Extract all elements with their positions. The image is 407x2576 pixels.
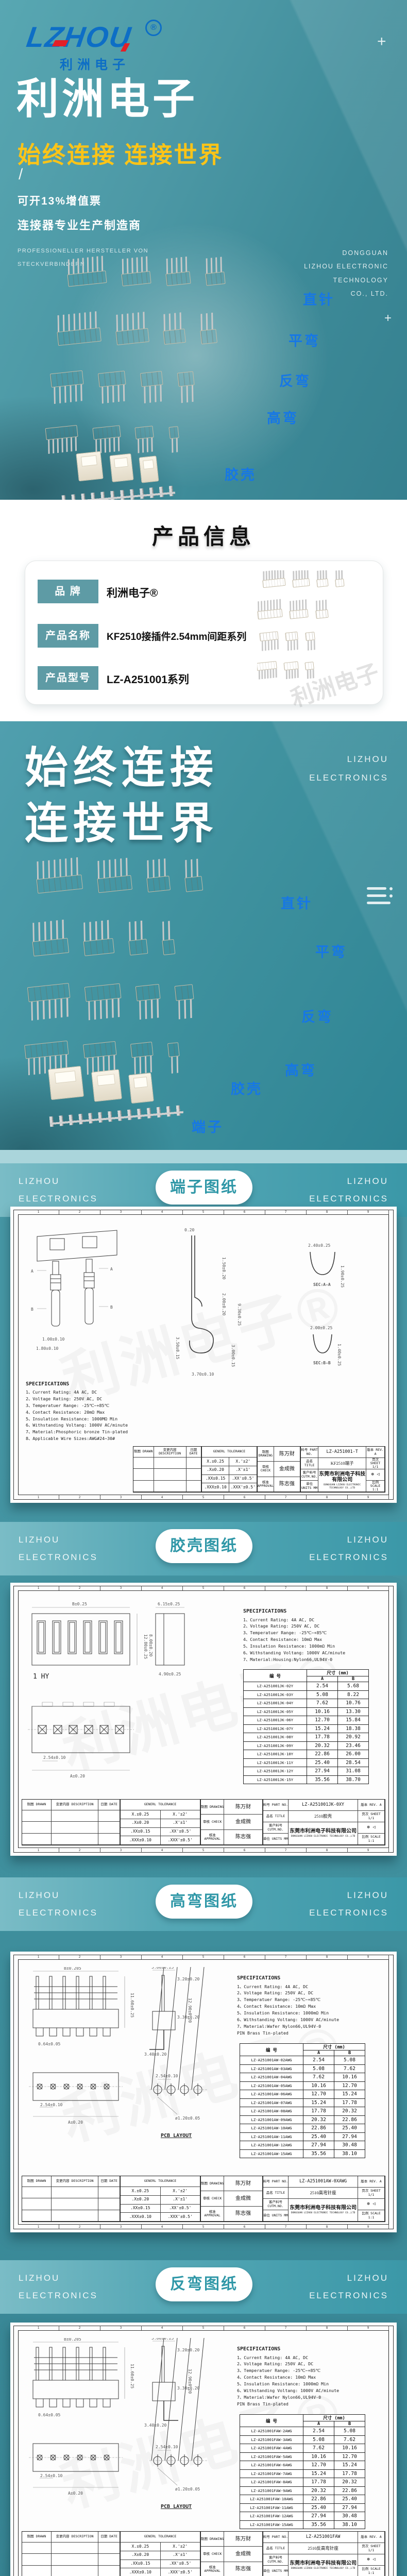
dim-b-cell: 30.48 <box>334 2141 365 2150</box>
part-number-cell: LZ-A251001AW-08AWG <box>240 2107 303 2116</box>
dim-b-cell: 12.70 <box>334 2452 365 2461</box>
connector-photo <box>127 920 148 955</box>
svg-text:4.90±0.25: 4.90±0.25 <box>159 1672 181 1676</box>
svg-text:PCB LAYOUT: PCB LAYOUT <box>161 2504 192 2510</box>
titleblock-r0l: 制图 DRAWING <box>201 1800 224 1815</box>
titleblock-part_no: LZ-A251001AW-0XAWG <box>289 2176 358 2188</box>
spec-line: 6、Withstanding Voltang: 1000V AC/minute <box>26 1422 128 1429</box>
connector-type-label: 反弯 <box>301 1006 333 1026</box>
titleblock-t20: .XX±0.15 <box>121 2205 160 2213</box>
connector-photo <box>84 984 124 1021</box>
titleblock-cust_label: 客户料号 CUTM.NO. <box>263 2554 289 2566</box>
titleblock-t30: .XXX±0.10 <box>121 2213 160 2222</box>
ruler-number: 5 <box>183 1586 224 1590</box>
header-brand-left: LIZHOUELECTRONICS <box>19 2269 98 2304</box>
dim-a-cell: 2.54 <box>307 1682 338 1691</box>
titleblock-t01: X.'±2' <box>161 1810 200 1819</box>
table-header-size: 尺寸 (mm) <box>303 2415 365 2421</box>
connector-type-label: 平弯 <box>289 330 320 350</box>
connector-photo <box>35 857 83 894</box>
ruler-number: 9 <box>348 1955 389 1959</box>
titleblock-cust_label: 客户料号 CUTM.NO. <box>263 1822 289 1834</box>
part-number-cell: LZ-A251001AW-05AWG <box>240 2081 303 2090</box>
hero-subtitle: 始终连接 连接世界 <box>18 136 224 170</box>
connector-photo <box>98 370 128 403</box>
svg-text:0.64±0.05: 0.64±0.05 <box>38 2042 61 2046</box>
connector-shell-photo <box>91 1069 122 1101</box>
titleblock-unitscell: 单位 UNITS MM <box>263 2566 289 2576</box>
part-number-cell: LZ-A251001JK-12Y <box>244 1767 307 1776</box>
header-brand-right: LIZHOUELECTRONICS <box>309 1173 388 1208</box>
dim-b-cell: 22.86 <box>334 2115 365 2124</box>
ruler-number: 9 <box>348 1586 389 1590</box>
titleblock-tol_title: GENERL TOLERANCE <box>121 1800 200 1810</box>
titleblock-drawn: 制图 DRAWN <box>133 1447 154 1458</box>
svg-text:B: B <box>110 1305 113 1310</box>
table-row: LZ-A251001FAW-7AWG 15.24 17.78 <box>240 2469 365 2478</box>
titleblock-title_cn: 2510胶壳 <box>289 1811 358 1822</box>
titleblock-t21: .XX'±0.5' <box>229 1475 257 1484</box>
header-brand-right: LIZHOUELECTRONICS <box>309 1531 388 1566</box>
table-row: LZ-A251001AW-05AWG 10.16 12.70 <box>240 2081 365 2090</box>
banner-en-line: ELECTRONICS <box>309 769 388 787</box>
dim-a-cell: 2.54 <box>303 2427 334 2436</box>
connector-photo <box>177 371 196 403</box>
specifications-block: SPECIFICATIONS1、Current Rating: 4A AC, D… <box>26 1380 128 1442</box>
ruler-number: 5 <box>183 1210 224 1214</box>
connector-type-label: 胶壳 <box>225 464 257 484</box>
ruler-number: 7 <box>265 2326 307 2330</box>
ruler-number: 8 <box>307 1586 348 1590</box>
titleblock-title_label: 品名 TITLE <box>263 1811 289 1822</box>
table-header-a: A <box>303 2421 334 2427</box>
connector-photo <box>65 256 107 287</box>
drawings-wrapper: LIZHOUELECTRONICS 端子图纸 LIZHOUELECTRONICS… <box>0 1150 407 2576</box>
svg-text:B: B <box>31 1307 33 1312</box>
wafer-drawing: B±0.205 11.60±0.25 0.64±0.05 5.80±0.25 3… <box>23 2338 234 2536</box>
banner-brand-en: LIZHOU ELECTRONICS <box>309 750 388 787</box>
titleblock-proj: ⊕ ◁ <box>358 2554 385 2566</box>
ruler-number: 6 <box>224 1210 265 1214</box>
dimension-table: 编 号 尺寸 (mm) A B LZ-A251001AW-02AWG 2.54 … <box>240 2043 365 2158</box>
connector-photo <box>140 371 165 403</box>
connector-photo <box>291 570 310 588</box>
table-header-a: A <box>303 2050 334 2056</box>
part-number-cell: LZ-A251001JK-09Y <box>244 1741 307 1750</box>
svg-text:5.80±0.25: 5.80±0.25 <box>151 2338 174 2341</box>
titleblock-part_label: 料号 PART NO. <box>263 1800 289 1811</box>
dim-b-cell: 27.94 <box>334 2132 365 2141</box>
ruler-number: 7 <box>265 1848 307 1853</box>
titleblock-t21: .XX'±0.5' <box>161 2560 200 2569</box>
ruler-number: 9 <box>348 1210 389 1214</box>
connector-photo <box>145 858 171 892</box>
titleblock-r0l: 制图 DRAWING <box>258 1447 274 1462</box>
ruler-number: 5 <box>183 1848 224 1853</box>
part-number-cell: LZ-A251001JK-15Y <box>244 1775 307 1784</box>
ruler-number: 7 <box>265 1955 307 1959</box>
svg-text:2.00±0.25: 2.00±0.25 <box>310 1326 333 1330</box>
titleblock-scalecell: 比例 SCALE 1:1 <box>358 1834 385 1845</box>
table-row: LZ-A251001JK-07Y 15.24 18.38 <box>244 1724 369 1733</box>
titleblock-t01: X.'±2' <box>161 2187 200 2196</box>
titleblock-t30: .XXX±0.10 <box>202 1483 230 1492</box>
connector-type-label: 高弯 <box>267 407 299 427</box>
table-header-size: 尺寸 (mm) <box>303 2044 365 2050</box>
svg-text:A±0.20: A±0.20 <box>70 1774 85 1778</box>
titleblock-proj: ⊕ ◁ <box>366 1469 385 1481</box>
table-row: LZ-A251001JK-02Y 2.54 5.68 <box>244 1682 369 1691</box>
table-row: LZ-A251001AW-08AWG 17.78 20.32 <box>240 2107 365 2116</box>
titleblock-r1v: 金成微 <box>224 2547 262 2562</box>
ruler-number: 4 <box>142 2326 183 2330</box>
spec-line: 5、Insulation Resistance: 1000mΩ Min <box>243 1643 345 1650</box>
drawing-title-text: 高弯图纸 <box>170 1893 238 1910</box>
dim-a-cell: 12.70 <box>307 1716 338 1725</box>
table-header-a: A <box>307 1676 338 1682</box>
dim-b-cell: 17.78 <box>334 2469 365 2478</box>
part-number-cell: LZ-A251001JK-04Y <box>244 1699 307 1708</box>
titleblock-scalecell: 比例 SCALE 1:1 <box>366 1481 385 1492</box>
spec-line: 1、Current Rating: 4A AC, DC <box>26 1389 128 1396</box>
part-number-cell: LZ-A251001FAW-2AWG <box>240 2427 303 2436</box>
table-header-b: B <box>338 1676 369 1682</box>
svg-text:11.60±0.25: 11.60±0.25 <box>130 1993 134 2018</box>
connector-photo <box>289 599 309 619</box>
dim-a-cell: 27.94 <box>303 2512 334 2521</box>
dim-a-cell: 15.24 <box>303 2469 334 2478</box>
connector-photo <box>314 600 329 619</box>
dim-a-cell: 35.56 <box>303 2520 334 2529</box>
titleblock-unitscell: 单位 UNITS MM <box>263 1834 289 1845</box>
svg-text:A: A <box>110 1267 113 1272</box>
part-number-cell: LZ-A251001JK-07Y <box>244 1724 307 1733</box>
connector-type-label: 直针 <box>281 892 313 912</box>
titleblock-t00: X.±0.25 <box>202 1458 230 1466</box>
spec-line: 3、Temperatuer Range: -25℃~+85℃ <box>243 1630 345 1636</box>
ruler-number: 4 <box>142 1848 183 1853</box>
part-number-cell: LZ-A251001AW-09AWG <box>240 2115 303 2124</box>
titleblock-drawn: 制图 DRAWN <box>22 2176 52 2187</box>
product-model-label: 产品型号 <box>38 666 98 690</box>
dim-a-cell: 10.16 <box>307 1707 338 1716</box>
connector-shell-photo <box>128 1073 154 1104</box>
titleblock-t10: .X±0.20 <box>121 2551 160 2560</box>
connector-photo <box>160 921 175 955</box>
dim-b-cell: 12.70 <box>334 2081 365 2090</box>
dim-a-cell: 22.86 <box>303 2495 334 2504</box>
svg-text:3.40±0.20: 3.40±0.20 <box>144 2423 167 2428</box>
svg-text:11.60±0.25: 11.60±0.25 <box>130 2364 134 2388</box>
table-row: LZ-A251001JK-05Y 10.16 13.30 <box>244 1707 369 1716</box>
plus-decoration-icon: + <box>384 312 392 325</box>
dim-a-cell: 7.62 <box>303 2444 334 2453</box>
ruler-number: 4 <box>142 1495 183 1500</box>
table-row: LZ-A251001FAW-15AWG 35.56 38.10 <box>240 2520 365 2529</box>
ruler-number: 3 <box>100 1586 142 1590</box>
ruler-number: 5 <box>183 2326 224 2330</box>
titleblock-title_cn: 2510反高弯针座 <box>289 2543 358 2554</box>
titleblock-t10: .X±0.20 <box>121 1819 160 1828</box>
logo-chinese-name: 利洲电子 <box>60 55 130 73</box>
dim-a-cell: 25.40 <box>307 1758 338 1767</box>
dim-b-cell: 25.40 <box>334 2124 365 2133</box>
titleblock-r1l: 审核 CHECK <box>201 2191 224 2206</box>
ruler-number: 4 <box>142 1210 183 1214</box>
titleblock-title_cn: KF2510端子 <box>318 1458 366 1469</box>
ruler-number: 2 <box>59 1955 100 1959</box>
titleblock-t11: .X'±1' <box>161 1819 200 1828</box>
dim-b-cell: 13.30 <box>338 1707 369 1716</box>
svg-text:5.80±0.25: 5.80±0.25 <box>151 1967 174 1970</box>
spec-line: 6、Withstanding Voltang: 1000V AC/minute <box>237 2016 339 2023</box>
connector-type-label: 反弯 <box>279 370 311 390</box>
table-row: LZ-A251001FAW-5AWG 10.16 12.70 <box>240 2452 365 2461</box>
ruler-number: 1 <box>18 1586 59 1590</box>
dim-b-cell: 18.38 <box>338 1724 369 1733</box>
ruler-number: 1 <box>18 1495 59 1500</box>
ruler-number: 4 <box>142 1586 183 1590</box>
svg-text:2.54±0.10: 2.54±0.10 <box>43 1755 66 1760</box>
table-row: LZ-A251001FAW-4AWG 7.62 10.16 <box>240 2444 365 2453</box>
table-row: LZ-A251001AW-10AWG 22.86 25.40 <box>240 2124 365 2133</box>
specs-title: SPECIFICATIONS <box>237 2345 339 2353</box>
ruler-number: 9 <box>348 2326 389 2330</box>
dim-a-cell: 25.40 <box>303 2503 334 2512</box>
hero-section: LZHOU 利洲电子 ® + 利洲电子 始终连接 连接世界 / 可开13%增值票… <box>0 0 407 500</box>
drawing-title-pill: 胶壳图纸 <box>156 1529 252 1563</box>
connector-photo <box>198 313 217 345</box>
titleblock-t30: .XXX±0.10 <box>121 1836 160 1845</box>
dim-b-cell: 10.16 <box>334 2444 365 2453</box>
table-row: LZ-A251001JK-08Y 17.78 20.92 <box>244 1733 369 1742</box>
part-number-cell: LZ-A251001JK-08Y <box>244 1733 307 1742</box>
connector-photo <box>50 370 86 404</box>
spec-line: 6、Withstanding Voltang: 1000V AC/minute <box>243 1650 345 1656</box>
part-number-cell: LZ-A251001AW-07AWG <box>240 2098 303 2107</box>
titleblock-title_label: 品名 TITLE <box>263 2543 289 2554</box>
ruler-number: 6 <box>224 2225 265 2229</box>
titleblock-company_en: DONGGUAN LIZHOU ELECTRONIC TECHNOLOGY CO… <box>318 1484 366 1489</box>
titleblock-revcell: 版本 REV. A <box>358 1800 385 1811</box>
part-number-cell: LZ-A251001FAW-3AWG <box>240 2435 303 2444</box>
titleblock-title_label: 品名 TITLE <box>301 1458 318 1469</box>
german-tagline-line1: PROFESSIONELLER HERSTELLER VON <box>18 244 148 258</box>
titleblock-t31: .XXX'±0.5' <box>161 2213 200 2222</box>
dim-a-cell: 15.24 <box>303 2098 334 2107</box>
titleblock-unitscell: 单位 UNITS MM <box>301 1481 318 1492</box>
connector-type-label: 高弯 <box>285 1059 317 1079</box>
plus-decoration-icon: + <box>377 34 386 49</box>
svg-text:0.64±0.05: 0.64±0.05 <box>38 2413 61 2417</box>
titleblock-revcell: 版本 REV. A <box>358 2176 385 2188</box>
drawing-title-text: 胶壳图纸 <box>170 1537 238 1554</box>
drawing-section-header: LIZHOUELECTRONICS 反弯图纸 LIZHOUELECTRONICS <box>0 2260 407 2314</box>
ruler-number: 8 <box>307 1955 348 1959</box>
titleblock-r2v: 陈志强 <box>274 1477 300 1492</box>
titleblock-t11: .X'±1' <box>229 1466 257 1475</box>
drawing-ruler: 123456789 <box>18 1495 389 1500</box>
table-row: LZ-A251001FAW-8AWG 17.78 20.32 <box>240 2478 365 2487</box>
drawing-section-header: LIZHOUELECTRONICS 高弯图纸 LIZHOUELECTRONICS <box>0 1877 407 1931</box>
part-number-cell: LZ-A251001FAW-15AWG <box>240 2520 303 2529</box>
titleblock-t20: .XX±0.15 <box>121 1828 160 1837</box>
dim-b-cell: 38.10 <box>334 2520 365 2529</box>
svg-text:B±0.205: B±0.205 <box>64 1967 81 1971</box>
titleblock-t11: .X'±1' <box>161 2551 200 2560</box>
ruler-number: 3 <box>100 1848 142 1853</box>
ruler-number: 2 <box>59 1848 100 1853</box>
product-name-label: 产品名称 <box>38 624 98 648</box>
dim-a-cell: 22.86 <box>307 1750 338 1759</box>
dim-b-cell: 5.08 <box>334 2427 365 2436</box>
ruler-number: 4 <box>142 2225 183 2229</box>
ruler-number: 7 <box>265 1210 307 1214</box>
ruler-number: 2 <box>59 2326 100 2330</box>
titleblock-t20: .XX±0.15 <box>202 1475 230 1484</box>
spec-line: 1、Current Rating: 4A AC, DC <box>237 1984 339 1990</box>
connector-photo <box>285 632 300 651</box>
brand-label: 品 牌 <box>38 580 98 603</box>
product-info-title: 产品信息 <box>0 519 407 551</box>
ruler-number: 3 <box>100 2326 142 2330</box>
table-row: LZ-A251001AW-12AWG 27.94 30.48 <box>240 2141 365 2150</box>
titleblock-r2v: 陈志强 <box>224 2207 262 2222</box>
svg-text:3.50±0.15: 3.50±0.15 <box>175 1337 180 1360</box>
svg-text:3.40±0.20: 3.40±0.20 <box>144 2052 167 2057</box>
spec-line: 7、Material:Wafer Nylon66,UL94V-0 <box>237 2023 339 2030</box>
svg-text:3.20±0.20: 3.20±0.20 <box>177 1977 200 1981</box>
drawing-ruler: 123456789 <box>18 1848 389 1853</box>
ruler-number: 2 <box>59 1586 100 1590</box>
titleblock-desc: 变更内容 DESCRIPTION <box>154 1447 186 1458</box>
ruler-number: 6 <box>224 1495 265 1500</box>
connector-photo <box>305 632 316 651</box>
titleblock-t11: .X'±1' <box>161 2196 200 2205</box>
titleblock-r0l: 制图 DRAWING <box>201 2532 224 2547</box>
titleblock-t10: .X±0.20 <box>121 2196 160 2205</box>
banner-section: 始终连接 连接世界 LIZHOU ELECTRONICS 直针平弯反弯高弯胶壳端… <box>0 721 407 1150</box>
dim-a-cell: 22.86 <box>303 2124 334 2133</box>
header-brand-left: LIZHOUELECTRONICS <box>19 1173 98 1208</box>
svg-text:3.70±0.10: 3.70±0.10 <box>192 1372 214 1377</box>
dim-b-cell: 10.16 <box>334 2073 365 2082</box>
ruler-number: 1 <box>18 1848 59 1853</box>
titleblock-company_cn: 东莞市利洲电子科技有限公司 <box>318 1471 366 1483</box>
table-row: LZ-A251001AW-02AWG 2.54 5.08 <box>240 2056 365 2065</box>
drawing-title-pill: 端子图纸 <box>156 1171 252 1205</box>
specifications-block: SPECIFICATIONS1、Current Rating: 4A AC, D… <box>243 1607 345 1663</box>
dim-a-cell: 5.08 <box>303 2435 334 2444</box>
titleblock-t21: .XX'±0.5' <box>161 2205 200 2213</box>
connector-photo <box>315 570 328 587</box>
titleblock-t31: .XXX'±0.5' <box>229 1483 257 1492</box>
titleblock-part_no: LZ-A251001-T <box>318 1447 366 1458</box>
connector-photo <box>45 425 79 454</box>
dim-b-cell: 7.62 <box>334 2435 365 2444</box>
dim-a-cell: 35.56 <box>303 2149 334 2158</box>
titleblock-company_en: DONGGUAN LIZHOU ELECTRONIC TECHNOLOGY CO… <box>291 2212 355 2214</box>
dim-a-cell: 20.32 <box>303 2115 334 2124</box>
connector-photo <box>167 1042 181 1074</box>
connector-shell-photo <box>109 453 133 482</box>
dim-b-cell: 38.10 <box>334 2149 365 2158</box>
banner-title-line2: 连接世界 <box>25 802 218 845</box>
dim-a-cell: 35.56 <box>307 1775 338 1784</box>
table-row: LZ-A251001FAW-2AWG 2.54 5.08 <box>240 2427 365 2436</box>
titleblock-t00: X.±0.25 <box>121 1810 160 1819</box>
titleblock-sheetcell: 页次 SHEET 1/1 <box>358 2543 385 2554</box>
dim-a-cell: 10.16 <box>303 2081 334 2090</box>
drawing-title-block: 制图 DRAWN变更内容 DESCRIPTION日期 DATE GENERL T… <box>22 2176 385 2222</box>
svg-text:2.54±0.10: 2.54±0.10 <box>40 2103 63 2107</box>
table-header-part: 编 号 <box>240 2415 303 2427</box>
svg-text:2.40±0.25: 2.40±0.25 <box>308 1243 331 1248</box>
titleblock-scalecell: 比例 SCALE 1:1 <box>358 2566 385 2576</box>
spec-line: 4、Contact Resistance: 20mΩ Max <box>26 1409 128 1416</box>
titleblock-t31: .XXX'±0.5' <box>161 1836 200 1845</box>
drawing-title-block: 制图 DRAWN变更内容 DESCRIPTION日期 DATE GENERL T… <box>22 1799 385 1845</box>
header-brand-left: LIZHOUELECTRONICS <box>19 1887 98 1922</box>
table-row: LZ-A251001JK-03Y 5.08 8.22 <box>244 1690 369 1699</box>
titleblock-t00: X.±0.25 <box>121 2543 160 2551</box>
table-row: LZ-A251001JK-09Y 20.32 23.46 <box>244 1741 369 1750</box>
dim-a-cell: 27.94 <box>303 2141 334 2150</box>
dim-b-cell: 15.24 <box>334 2461 365 2470</box>
table-row: LZ-A251001AW-07AWG 15.24 17.78 <box>240 2098 365 2107</box>
table-row: LZ-A251001JK-10Y 22.86 26.00 <box>244 1750 369 1759</box>
ruler-number: 9 <box>348 2225 389 2229</box>
spec-line: 3、Temperatuer Range: -25℃~+85℃ <box>237 2367 339 2374</box>
titleblock-r2v: 陈志强 <box>224 1830 262 1845</box>
titleblock-title_cn: 2510高弯针座 <box>289 2188 358 2199</box>
dim-a-cell: 17.78 <box>303 2478 334 2487</box>
spec-line: 2、Voltage Rating: 250V AC, DC <box>243 1623 345 1630</box>
connector-photo <box>55 311 101 346</box>
brand-value: 利洲电子® <box>107 585 158 600</box>
registered-trademark-icon: ® <box>145 20 162 36</box>
dim-b-cell: 27.94 <box>334 2503 365 2512</box>
titleblock-t21: .XX'±0.5' <box>161 1828 200 1837</box>
ruler-number: 8 <box>307 1495 348 1500</box>
table-row: LZ-A251001AW-03AWG 5.08 7.62 <box>240 2064 365 2073</box>
company-en-line: TECHNOLOGY <box>304 274 388 287</box>
connector-photo <box>164 257 191 286</box>
titleblock-r2l: 核准 APPROVAL <box>258 1477 274 1492</box>
table-row: LZ-A251001JK-11Y 25.40 28.54 <box>244 1758 369 1767</box>
spec-line: 4、Contact Resistance: 10mΩ Max <box>237 2374 339 2381</box>
svg-text:2.54±0.10: 2.54±0.10 <box>156 2074 178 2078</box>
ruler-number: 6 <box>224 1955 265 1959</box>
titleblock-r1v: 金成微 <box>274 1462 300 1477</box>
header-brand-left: LIZHOUELECTRONICS <box>19 1531 98 1566</box>
connector-photo <box>175 984 196 1019</box>
svg-text:0.20: 0.20 <box>184 1228 194 1232</box>
titleblock-part_label: 料号 PART NO. <box>263 2176 289 2188</box>
ruler-number: 1 <box>18 2326 59 2330</box>
dim-a-cell: 17.78 <box>303 2107 334 2116</box>
drawing-ruler: 123456789 <box>18 1955 389 1960</box>
connector-photo <box>257 599 283 620</box>
ruler-number: 7 <box>265 2225 307 2229</box>
menu-icon <box>367 887 396 910</box>
product-model-value: LZ-A251001系列 <box>107 671 189 687</box>
spec-line: 2、Voltage Rating: 250V AC, DC <box>237 2361 339 2367</box>
header-brand-right: LIZHOUELECTRONICS <box>309 2269 388 2304</box>
svg-text:3.30±0.20: 3.30±0.20 <box>177 2386 200 2391</box>
dim-b-cell: 10.76 <box>338 1699 369 1708</box>
specs-title: SPECIFICATIONS <box>243 1607 345 1616</box>
